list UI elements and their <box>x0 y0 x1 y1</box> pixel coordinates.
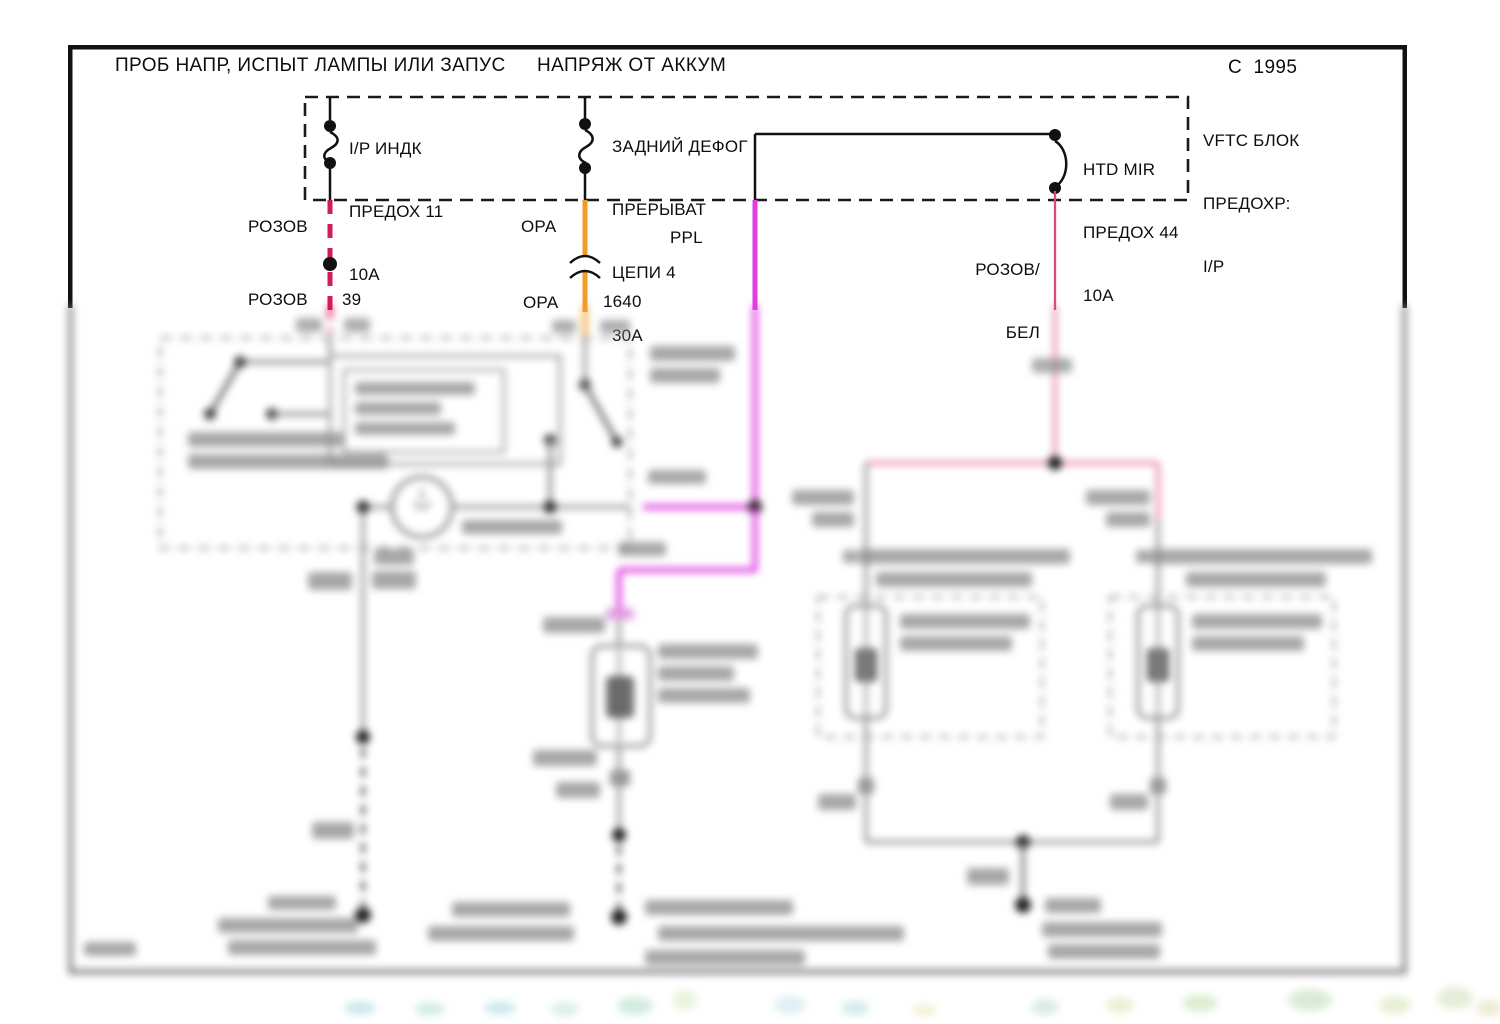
wire-orange-color-label: ОРА <box>521 216 556 237</box>
fuse-2-line: ПРЕРЫВАТ <box>612 199 748 220</box>
fuse-1-symbol <box>324 97 338 200</box>
page-title-right: НАПРЯЖ ОТ АККУМ <box>537 55 726 76</box>
fuse-3-line: HTD MIR <box>1083 159 1179 180</box>
wire-pink-color-label: РОЗОВ <box>248 216 308 237</box>
blurred-lower-diagram <box>0 305 1500 1024</box>
fuse-3-line: ПРЕДОХ 44 <box>1083 222 1179 243</box>
fuse-1-line: ПРЕДОХ 11 <box>349 201 443 222</box>
blurred-schematic <box>0 305 1500 1024</box>
fuse-1-line: I/P ИНДК <box>349 138 443 159</box>
blurred-mirror-circuit <box>792 456 1372 959</box>
wire-break-icon <box>570 256 600 263</box>
blurred-left-ground-branch <box>84 513 416 956</box>
fuse-2-line: ЦЕПИ 4 <box>612 262 748 283</box>
wire-orange-1640 <box>570 200 600 312</box>
splice-dot <box>323 257 337 271</box>
blurred-lamp-row <box>357 477 763 614</box>
fuse-panel-name-line: VFTC БЛОК <box>1203 130 1299 151</box>
fuse-1-line: 10A <box>349 264 443 285</box>
blurred-defogger-grid-branch <box>428 608 904 965</box>
fuse-panel-name-line: ПРЕДОХР: <box>1203 193 1299 214</box>
wire-purple-color-label: PPL <box>670 227 703 248</box>
fuse-3-symbol <box>755 129 1066 200</box>
fuse-2-symbol <box>579 97 593 200</box>
wire-pink-39 <box>323 200 337 310</box>
blurred-bottom-smudges <box>344 987 1500 1016</box>
fuse-2-line: ЗАДНИЙ ДЕФОГ <box>612 136 748 157</box>
fuse-1-label: I/P ИНДК ПРЕДОХ 11 10A <box>349 96 443 327</box>
fuse-panel-name: VFTC БЛОК ПРЕДОХР: I/P <box>1203 88 1299 319</box>
fuse-panel-name-line: I/P <box>1203 256 1299 277</box>
wiring-diagram-page: ПРОБ НАПР, ИСПЫТ ЛАМПЫ ИЛИ ЗАПУС НАПРЯЖ … <box>0 0 1500 1024</box>
page-title-left: ПРОБ НАПР, ИСПЫТ ЛАМПЫ ИЛИ ЗАПУС <box>115 55 506 76</box>
fuse-3-line: 10A <box>1083 285 1179 306</box>
copyright-year: C 1995 <box>1228 57 1297 78</box>
wire-pink-white-line: РОЗОВ/ <box>920 259 1040 280</box>
